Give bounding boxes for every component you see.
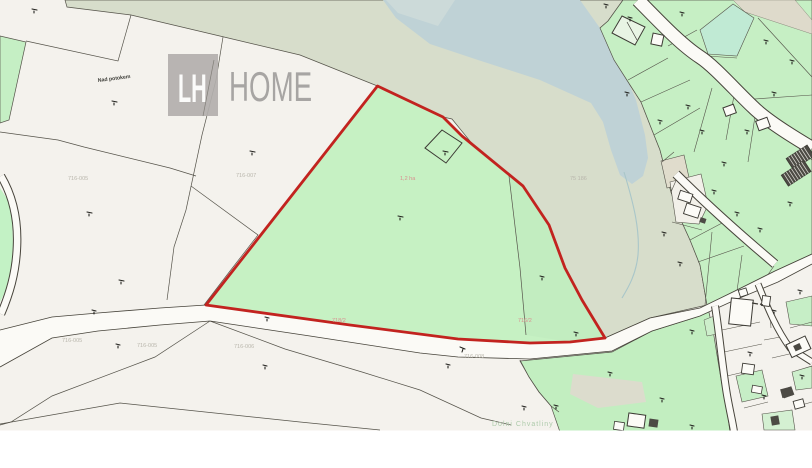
svg-text:75 186: 75 186 <box>570 176 587 182</box>
svg-text:716-006: 716-006 <box>234 344 254 350</box>
svg-text:716-007: 716-007 <box>236 173 256 179</box>
svg-text:HOME: HOME <box>229 63 312 110</box>
svg-text:716-005: 716-005 <box>62 338 82 344</box>
svg-text:716-005: 716-005 <box>68 176 88 182</box>
svg-text:1,2 ha: 1,2 ha <box>400 176 416 182</box>
svg-text:718/2: 718/2 <box>332 318 346 324</box>
svg-text:716-005: 716-005 <box>137 343 157 349</box>
svg-text:716-008: 716-008 <box>464 354 484 360</box>
svg-text:716/2: 716/2 <box>518 318 532 324</box>
svg-text:LH: LH <box>178 66 207 111</box>
svg-text:Dolni Chvatliny: Dolni Chvatliny <box>492 421 554 428</box>
